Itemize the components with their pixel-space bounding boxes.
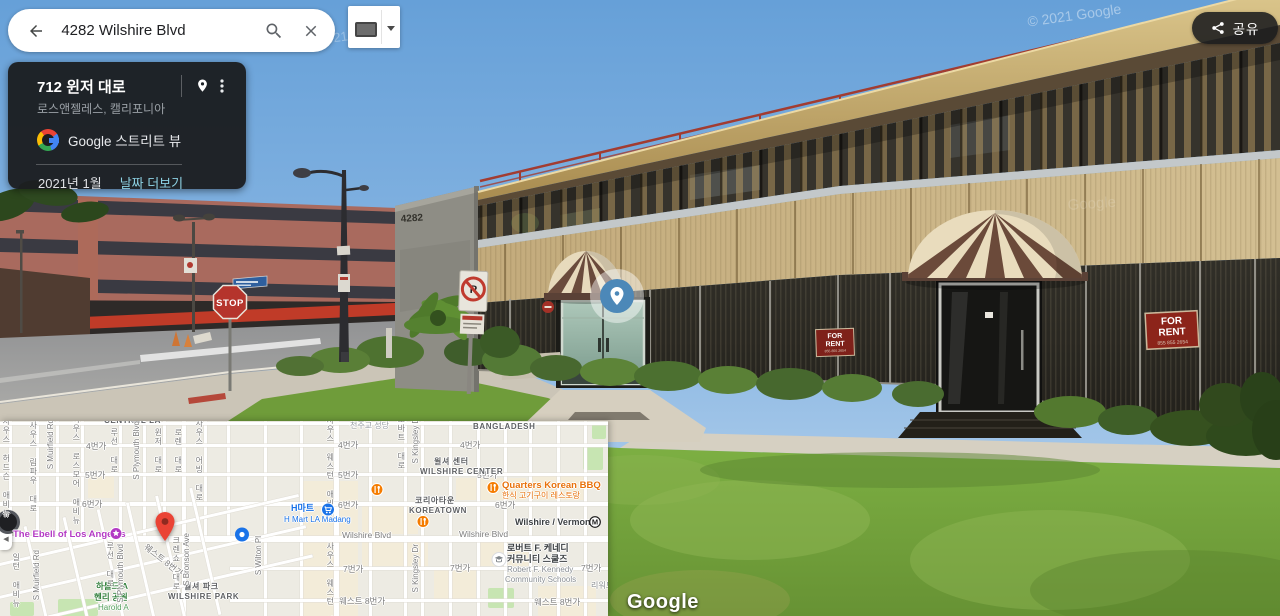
blue-dot-icon xyxy=(234,526,251,548)
share-icon xyxy=(1211,21,1225,35)
more-dates-link[interactable]: 날짜 더보기 xyxy=(120,173,183,192)
map-label: 루선 대로 xyxy=(109,428,118,474)
search-icon[interactable] xyxy=(262,19,285,43)
map-label: 웨스트 8번가 xyxy=(339,597,385,606)
map-label: 4번가 xyxy=(86,442,106,451)
svg-text:RENT: RENT xyxy=(1158,326,1186,338)
restaurant-icon xyxy=(371,483,384,501)
map-label: 6번가 xyxy=(338,501,358,510)
bollard xyxy=(386,328,392,358)
map-label: S Kingsley Dr xyxy=(412,544,421,592)
map-label: H마트 xyxy=(291,504,314,514)
map-label: 윌셔 센터 xyxy=(434,458,469,467)
map-label: 일턴 애비뉴 xyxy=(11,553,20,608)
map-label: 7번가 xyxy=(450,564,470,573)
map-label: 4번가 xyxy=(460,441,480,450)
street-view-app: © 2021 Google © 2021 Google 4282 xyxy=(0,0,1280,616)
for-rent-sign-small: FOR RENT 855 855 2654 xyxy=(816,328,855,356)
map-label: Wilshire Blvd xyxy=(342,531,391,540)
chevron-down-icon[interactable] xyxy=(387,26,395,31)
map-label: 7번가 xyxy=(581,564,601,573)
map-label: BANGLADESH xyxy=(473,423,535,432)
svg-text:STOP: STOP xyxy=(216,298,244,309)
map-label: 커뮤니티 스쿨즈 xyxy=(507,555,567,565)
map-label: 천주교 성당 xyxy=(350,422,389,431)
place-pin-icon[interactable] xyxy=(192,75,212,97)
map-label: Quarters Korean BBQ xyxy=(502,481,601,491)
map-label: 사우스 허드슨 애비뉴 xyxy=(1,421,10,518)
search-input[interactable] xyxy=(59,21,262,40)
google-logo[interactable]: Google xyxy=(627,591,699,614)
search-bar[interactable] xyxy=(8,9,335,52)
hmart-icon xyxy=(321,503,335,522)
svg-text:FOR: FOR xyxy=(827,333,842,341)
map-label: 호바트 대로 xyxy=(396,421,405,470)
map-label: WILSHIRE CENTER xyxy=(420,468,503,477)
minimap[interactable]: ◀ CENTRAL LA천주교 성당BANGLADESH4번가4번가4번가5번가… xyxy=(0,421,608,616)
map-label: 6번가 xyxy=(82,500,102,509)
svg-text:855 855 2654: 855 855 2654 xyxy=(825,349,847,354)
map-label: 한식 고기구이 레스토랑 xyxy=(502,492,580,501)
map-label: 사우스 로스모어 애비뉴 xyxy=(71,421,80,525)
share-button[interactable]: 공유 xyxy=(1192,12,1278,44)
map-label: 사우스 림파우 대로 xyxy=(28,421,37,513)
for-rent-sign: FOR RENT 855 855 2654 xyxy=(1145,311,1199,350)
collapsed-map-icon[interactable] xyxy=(355,22,377,37)
map-label: WILSHIRE PARK xyxy=(168,593,239,602)
map-label: 로버트 F. 케네디 xyxy=(507,544,569,554)
school-icon xyxy=(492,552,507,572)
map-label: 코리아타운 xyxy=(415,497,455,506)
map-label: Robert F. Kennedy xyxy=(507,566,573,575)
map-label: 로렌 대로 xyxy=(173,428,182,474)
ebell-icon xyxy=(110,527,123,545)
map-label: 5번가 xyxy=(85,471,105,480)
map-label: S Kingsley Dr xyxy=(412,421,421,463)
restaurant-icon xyxy=(417,515,430,533)
place-info-card: 712 윈저 대로 로스앤젤레스, 캘리포니아 Google 스트리트 뷰 20… xyxy=(8,62,246,189)
svg-text:RENT: RENT xyxy=(825,341,845,349)
map-label: S Wilton Pl xyxy=(255,536,264,575)
map-label: 윈저 대로 xyxy=(153,428,162,474)
map-label: 5번가 xyxy=(338,471,358,480)
location-pin-icon[interactable] xyxy=(156,512,175,546)
map-label: S Plymouth Blvd xyxy=(133,421,142,480)
back-arrow-icon[interactable] xyxy=(24,19,47,43)
pano-location-marker[interactable] xyxy=(590,269,644,323)
map-label: 사우스 어빙 대로 xyxy=(194,421,203,502)
map-label: S Plymouth Blvd xyxy=(117,544,126,603)
map-label: 리워드 xyxy=(591,582,608,591)
divider xyxy=(381,10,382,44)
building-number: 4282 xyxy=(400,212,423,225)
wall-watermark: Google xyxy=(1067,194,1116,214)
map-label: 사우스 웨스턴 애비뉴 xyxy=(325,542,334,616)
google-g-icon xyxy=(37,129,59,151)
map-label: S Muirfield Rd xyxy=(47,421,56,469)
restaurant-icon xyxy=(487,481,500,499)
map-label: 6번가 xyxy=(495,501,515,510)
svg-text:M: M xyxy=(592,518,598,527)
map-label: S Muirfield Rd xyxy=(33,550,42,600)
map-label: 루선 대로 xyxy=(105,542,114,588)
capture-date: 2021년 1월 xyxy=(38,173,102,192)
close-icon[interactable] xyxy=(300,19,323,43)
divider xyxy=(181,75,182,97)
map-label: 7번가 xyxy=(343,565,363,574)
map-label: Community Schools xyxy=(505,576,576,585)
place-subtitle: 로스앤젤레스, 캘리포니아 xyxy=(8,97,246,117)
place-title: 712 윈저 대로 xyxy=(37,76,177,97)
map-label: 4번가 xyxy=(338,441,358,450)
map-label: H Mart LA Madang xyxy=(284,516,351,525)
map-display-control[interactable] xyxy=(348,6,400,48)
map-label: Wilshire / Vermont xyxy=(515,518,593,528)
brand-label: Google 스트리트 뷰 xyxy=(68,130,181,150)
map-label: Harold A xyxy=(98,604,129,613)
share-label: 공유 xyxy=(1233,18,1260,38)
metro-icon: M xyxy=(589,515,601,533)
map-label: Wilshire Blvd xyxy=(459,530,508,539)
overflow-menu-icon[interactable] xyxy=(212,75,232,97)
map-label: 웨스트 8번가 xyxy=(534,598,580,607)
map-label: S Bronson Ave xyxy=(183,533,192,586)
